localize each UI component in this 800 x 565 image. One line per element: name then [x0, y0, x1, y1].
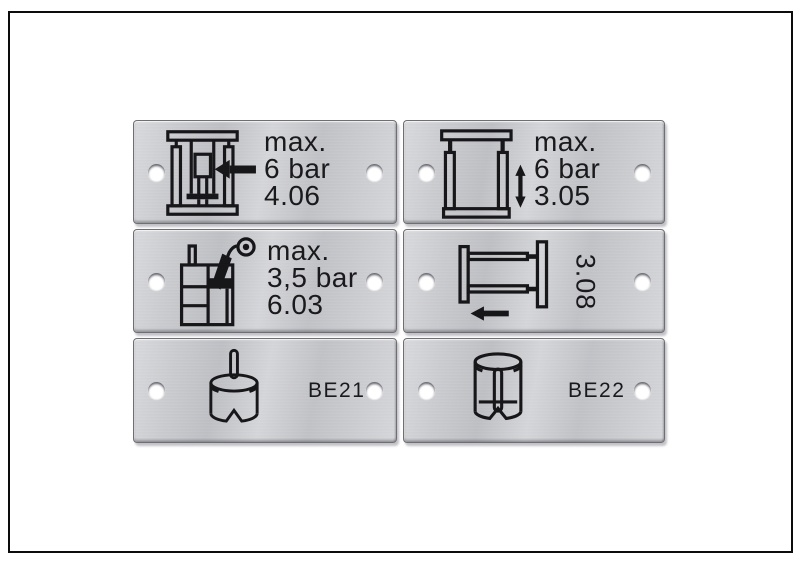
rotated-code-label: 3.08	[570, 254, 601, 311]
mounting-hole-right	[634, 273, 651, 290]
code-line: 6.03	[267, 291, 358, 318]
mounting-hole-right	[366, 164, 383, 181]
nameplate-be22: BE22	[403, 338, 665, 443]
plate-text: max. 6 bar 3.05	[534, 128, 600, 209]
mounting-hole-left	[418, 164, 435, 181]
nameplate-3-08: 3.08	[403, 229, 665, 333]
max-line: max.	[267, 237, 358, 264]
plate-code-label: BE22	[568, 379, 625, 403]
nameplate-4-06: max. 6 bar 4.06	[133, 120, 397, 224]
max-line: max.	[264, 128, 330, 155]
nameplate-6-03: max. 3,5 bar 6.03	[133, 229, 397, 333]
pressure-line: 6 bar	[264, 155, 330, 182]
code-line: 4.06	[264, 182, 330, 209]
nameplate-grid: max. 6 bar 4.06	[133, 120, 665, 443]
horizontal-slide-left-arrow-icon	[454, 238, 554, 324]
die-with-center-pin-icon	[204, 344, 264, 439]
press-ram-left-arrow-icon	[162, 128, 258, 218]
catalog-figure: max. 6 bar 4.06	[0, 0, 800, 565]
mounting-hole-right	[634, 164, 651, 181]
sleeve-with-inner-pin-icon	[466, 347, 530, 435]
mounting-hole-left	[418, 273, 435, 290]
max-line: max.	[534, 128, 600, 155]
nameplate-3-05: max. 6 bar 3.05	[403, 120, 665, 224]
mounting-hole-right	[366, 382, 383, 399]
mounting-hole-right	[366, 273, 383, 290]
pressure-line: 6 bar	[534, 155, 600, 182]
mounting-hole-right	[634, 382, 651, 399]
plate-text: max. 3,5 bar 6.03	[267, 237, 358, 318]
tank-spray-gun-icon	[174, 234, 264, 330]
plate-code-label: BE21	[308, 379, 365, 403]
plate-text: max. 6 bar 4.06	[264, 128, 330, 209]
nameplate-be21: BE21	[133, 338, 397, 443]
pressure-line: 3,5 bar	[267, 264, 358, 291]
vertical-slide-double-arrow-icon	[437, 127, 527, 221]
mounting-hole-left	[418, 382, 435, 399]
code-line: 3.05	[534, 182, 600, 209]
mounting-hole-left	[148, 382, 165, 399]
mounting-hole-left	[148, 273, 165, 290]
